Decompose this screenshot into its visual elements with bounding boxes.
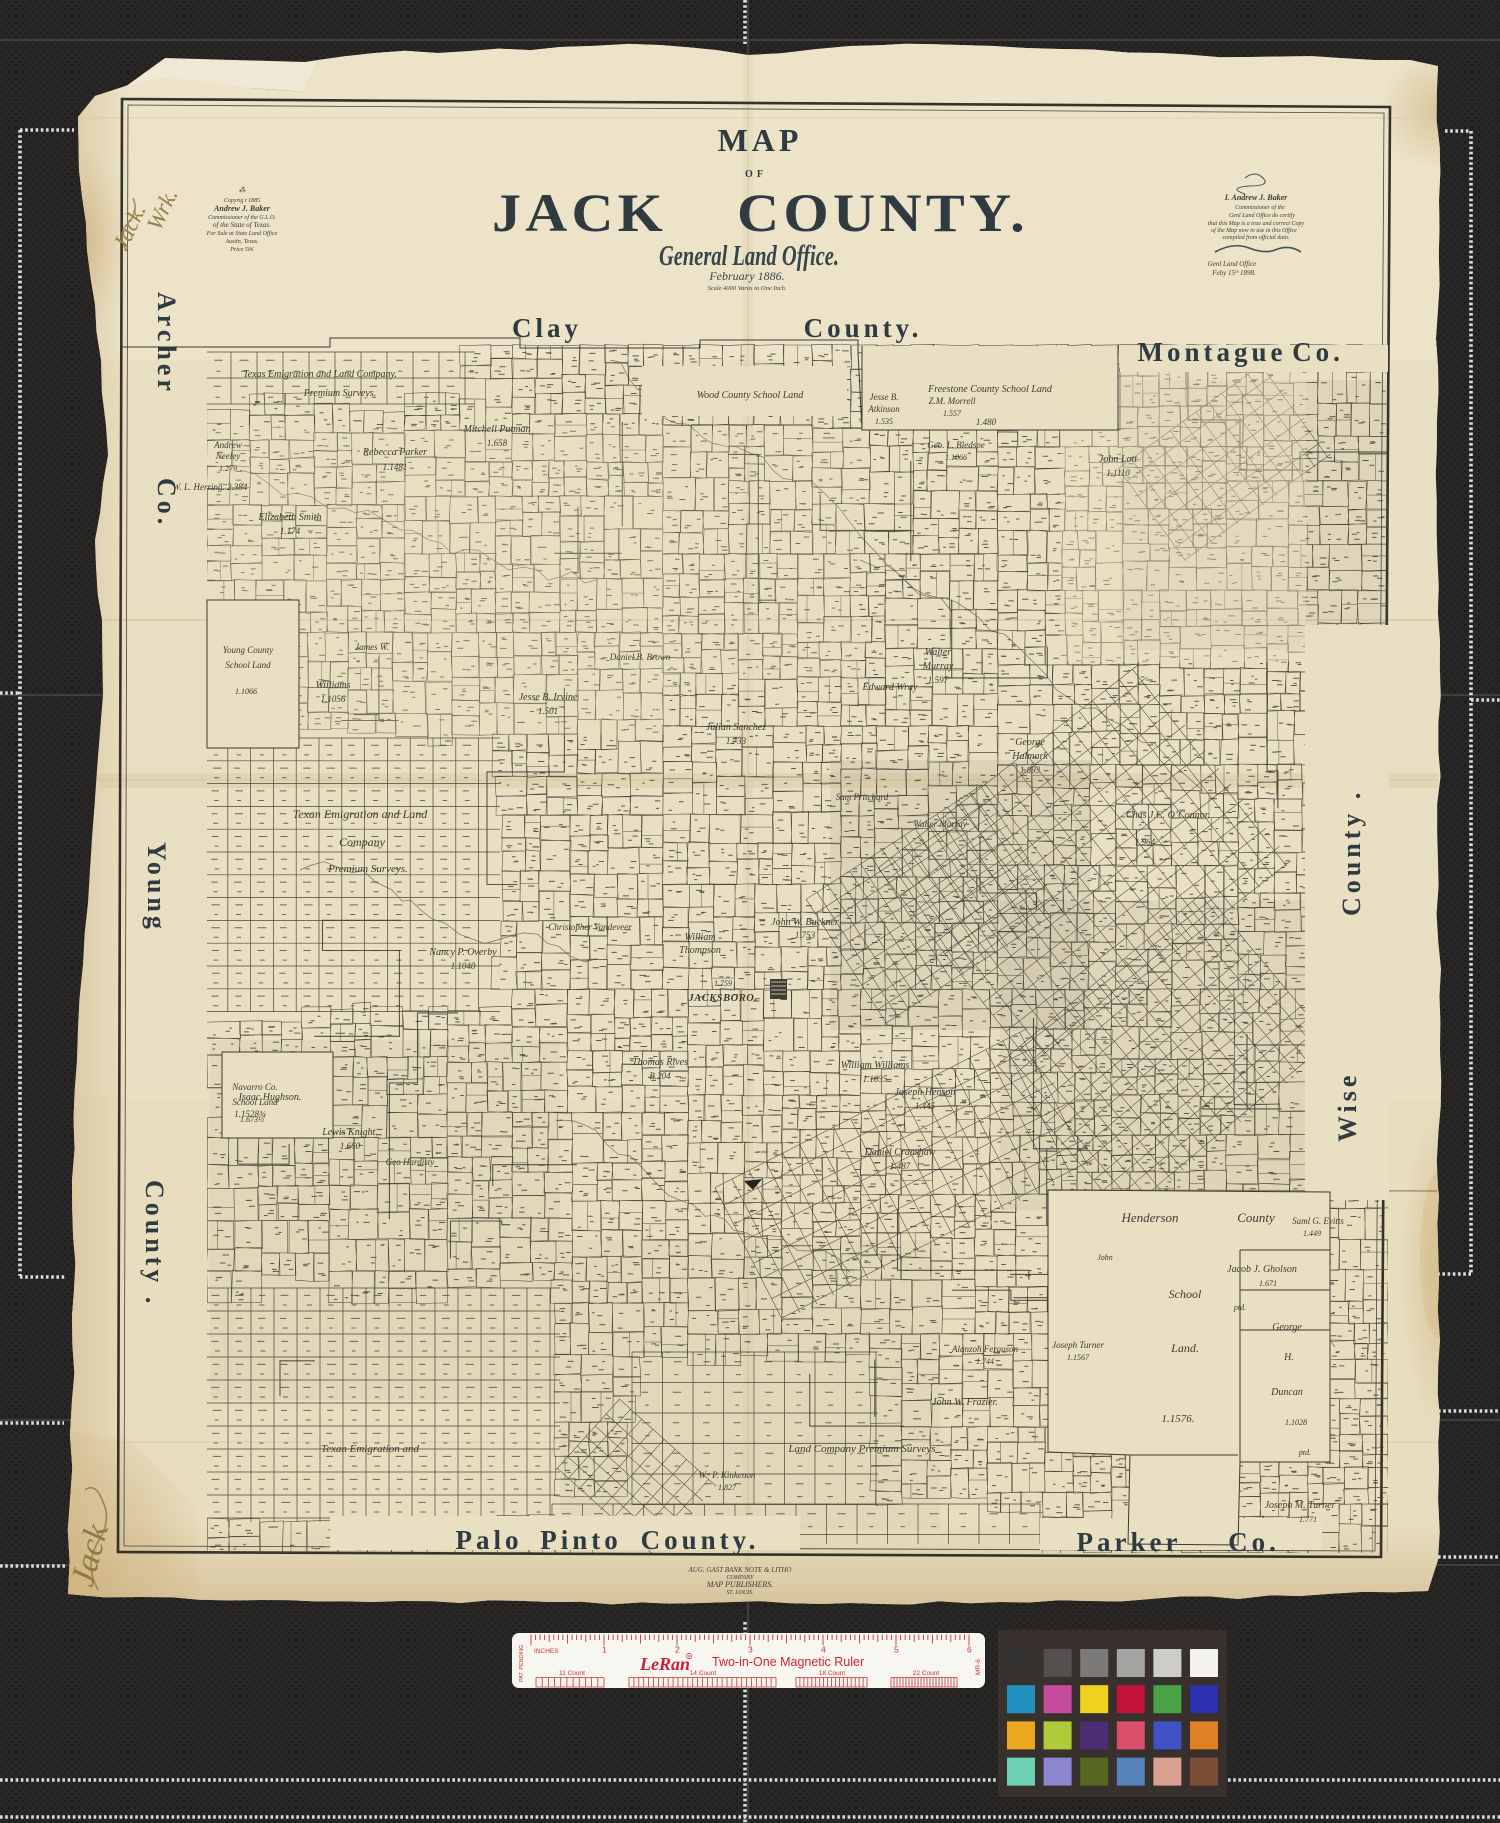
svg-text:1.480: 1.480 bbox=[976, 417, 997, 427]
svg-text:1.1110: 1.1110 bbox=[1106, 468, 1130, 478]
svg-text:AUG. GAST BANK NOTE & LITHO: AUG. GAST BANK NOTE & LITHO bbox=[688, 1566, 792, 1574]
svg-text:Rebecca Parker: Rebecca Parker bbox=[362, 447, 427, 458]
svg-text:Daniel B. Brown: Daniel B. Brown bbox=[609, 652, 671, 662]
svg-text:Williams: Williams bbox=[315, 680, 350, 691]
svg-text:Walter Murray: Walter Murray bbox=[913, 819, 966, 829]
svg-text:Young: Young bbox=[142, 842, 171, 933]
svg-text:Edward Wray: Edward Wray bbox=[862, 682, 918, 693]
svg-text:1.487: 1.487 bbox=[890, 1161, 911, 1171]
svg-text:1.1066: 1.1066 bbox=[945, 453, 967, 462]
svg-text:General Land Office.: General Land Office. bbox=[659, 241, 839, 272]
svg-text:John W. Buckner: John W. Buckner bbox=[771, 917, 839, 928]
svg-text:1.1066: 1.1066 bbox=[235, 687, 257, 696]
svg-text:JACK: JACK bbox=[492, 183, 667, 243]
svg-text:LeRan: LeRan bbox=[639, 1654, 690, 1674]
svg-text:William: William bbox=[684, 932, 715, 943]
svg-text:Co.: Co. bbox=[1228, 1527, 1280, 1557]
svg-text:MAP PUBLISHERS.: MAP PUBLISHERS. bbox=[706, 1580, 774, 1589]
svg-text:1.174: 1.174 bbox=[280, 526, 301, 536]
svg-text:Halmark: Halmark bbox=[1011, 751, 1048, 762]
svg-text:1: 1 bbox=[602, 1645, 607, 1655]
svg-text:2: 2 bbox=[675, 1645, 680, 1655]
svg-text:Murray: Murray bbox=[922, 661, 954, 672]
svg-text:1.753: 1.753 bbox=[795, 930, 816, 940]
svg-text:⁂: ⁂ bbox=[239, 186, 247, 194]
svg-text:Scale 4000 Varas to One In: Scale 4000 Varas to One Inch. bbox=[707, 285, 786, 292]
svg-text:Clay: Clay bbox=[512, 313, 582, 343]
svg-text:Alanzon Ferguson: Alanzon Ferguson bbox=[951, 1344, 1018, 1354]
svg-text:Company: Company bbox=[339, 835, 386, 849]
svg-text:INCHES: INCHES bbox=[534, 1648, 559, 1655]
svg-text:William Williams: William Williams bbox=[841, 1060, 910, 1071]
svg-text:Andrew: Andrew bbox=[213, 440, 242, 450]
svg-text:County .: County . bbox=[1337, 789, 1366, 916]
svg-text:Joseph Turner: Joseph Turner bbox=[1052, 1340, 1104, 1350]
svg-text:Two-in-One Magnetic Ruler: Two-in-One Magnetic Ruler bbox=[712, 1655, 864, 1669]
svg-text:Wᵐ P. Kinkenon: Wᵐ P. Kinkenon bbox=[699, 1470, 756, 1480]
svg-text:School: School bbox=[1169, 1287, 1202, 1301]
svg-text:County: County bbox=[1237, 1210, 1275, 1225]
svg-text:Feby 15ᵗʰ 1898.: Feby 15ᵗʰ 1898. bbox=[1211, 269, 1256, 277]
svg-text:Freestone County School Lan: Freestone County School Land bbox=[927, 384, 1053, 395]
svg-text:Thompson: Thompson bbox=[679, 945, 721, 956]
svg-text:COUNTY.: COUNTY. bbox=[737, 183, 1029, 243]
svg-text:Co.: Co. bbox=[152, 478, 181, 528]
svg-text:Nancy P. Overby: Nancy P. Overby bbox=[428, 947, 497, 958]
svg-text:B.204: B.204 bbox=[649, 1071, 671, 1081]
svg-text:1.733: 1.733 bbox=[726, 736, 747, 746]
svg-text:George: George bbox=[1015, 737, 1045, 748]
svg-text:5: 5 bbox=[894, 1645, 899, 1655]
svg-text:Archer: Archer bbox=[152, 292, 181, 395]
svg-text:Jesse B. Irvine: Jesse B. Irvine bbox=[519, 692, 578, 703]
svg-text:14 Count: 14 Count bbox=[690, 1670, 717, 1677]
svg-text:Julian Sanchez: Julian Sanchez bbox=[706, 722, 766, 733]
svg-text:County.: County. bbox=[804, 313, 923, 343]
svg-text:1.279: 1.279 bbox=[219, 464, 237, 473]
svg-text:John Lott: John Lott bbox=[1099, 454, 1137, 465]
svg-text:Walter: Walter bbox=[925, 647, 951, 658]
svg-text:R: R bbox=[688, 1654, 691, 1659]
svg-text:1.445: 1.445 bbox=[915, 1101, 936, 1111]
svg-text:1.535: 1.535 bbox=[875, 417, 893, 426]
svg-text:1.597: 1.597 bbox=[928, 675, 949, 685]
svg-text:John W. Frazier.: John W. Frazier. bbox=[932, 1397, 998, 1408]
svg-text:Joseph Henson: Joseph Henson bbox=[895, 1087, 956, 1098]
svg-text:Navarro Co.: Navarro Co. bbox=[231, 1082, 277, 1092]
svg-text:Christopher Vandeveer: Christopher Vandeveer bbox=[548, 922, 632, 932]
svg-text:of the Map now in use in this: of the Map now in use in this Office bbox=[1211, 227, 1297, 234]
svg-text:George: George bbox=[1272, 1322, 1302, 1333]
svg-text:OF: OF bbox=[745, 169, 767, 180]
svg-text:Andrew J. Baker: Andrew J. Baker bbox=[213, 204, 271, 213]
svg-text:ST. LOUIS.: ST. LOUIS. bbox=[726, 1590, 753, 1596]
svg-text:Texan Emigration and Lan: Texan Emigration and Land bbox=[293, 807, 429, 821]
svg-text:Land Company Premium Sur: Land Company Premium Surveys bbox=[787, 1443, 935, 1455]
svg-text:PAT. PENDING: PAT. PENDING bbox=[519, 1645, 525, 1682]
svg-text:Young County: Young County bbox=[223, 645, 273, 655]
svg-text:School Land: School Land bbox=[232, 1097, 278, 1107]
svg-text:School Land: School Land bbox=[225, 660, 271, 670]
svg-text:Texas Emigration and Lan: Texas Emigration and Land Company. bbox=[243, 369, 397, 380]
svg-text:11 Count: 11 Count bbox=[559, 1670, 585, 1677]
svg-text:ptd.: ptd. bbox=[1233, 1303, 1246, 1312]
svg-text:6: 6 bbox=[967, 1645, 972, 1655]
svg-text:Atkinson: Atkinson bbox=[867, 404, 900, 414]
svg-text:Joseph M. Turner: Joseph M. Turner bbox=[1265, 1500, 1336, 1511]
svg-text:1.501: 1.501 bbox=[538, 706, 558, 716]
svg-text:W. L. Herring. 2.384: W. L. Herring. 2.384 bbox=[173, 482, 248, 492]
svg-text:Premium Surveys.: Premium Surveys. bbox=[327, 863, 408, 875]
svg-text:1.1567: 1.1567 bbox=[1067, 1353, 1090, 1362]
svg-text:1.1056: 1.1056 bbox=[321, 694, 346, 704]
svg-text:Geo. L. Bledsoe: Geo. L. Bledsoe bbox=[927, 440, 985, 450]
svg-text:Pinto: Pinto bbox=[540, 1525, 622, 1555]
svg-text:For Sale at State Land Office: For Sale at State Land Office bbox=[206, 230, 278, 237]
svg-text:4: 4 bbox=[821, 1645, 826, 1655]
svg-text:John: John bbox=[1097, 1253, 1113, 1262]
svg-text:3: 3 bbox=[748, 1645, 753, 1655]
svg-text:Jacob J. Gholson: Jacob J. Gholson bbox=[1227, 1264, 1297, 1275]
svg-text:Commissioner of the: Commissioner of the bbox=[1235, 204, 1285, 211]
svg-text:MR-6: MR-6 bbox=[975, 1659, 982, 1675]
svg-text:Henderson: Henderson bbox=[1120, 1210, 1178, 1225]
svg-text:1.759: 1.759 bbox=[714, 979, 732, 988]
svg-text:MAP: MAP bbox=[718, 122, 803, 158]
svg-text:1.660: 1.660 bbox=[340, 1141, 361, 1151]
svg-text:Duncan: Duncan bbox=[1270, 1387, 1303, 1398]
svg-text:Geo Hardisty: Geo Hardisty bbox=[386, 1157, 434, 1167]
svg-text:Genl Land Office: Genl Land Office bbox=[1208, 260, 1257, 268]
svg-text:Sam Pritchard: Sam Pritchard bbox=[836, 792, 889, 802]
svg-text:Price 50¢: Price 50¢ bbox=[229, 247, 254, 253]
svg-text:County .: County . bbox=[140, 1180, 169, 1307]
svg-text:1.1035: 1.1035 bbox=[863, 1074, 888, 1084]
svg-text:Chas J.C. O’Connor.: Chas J.C. O’Connor. bbox=[1126, 810, 1210, 821]
svg-text:I. Andrew J. Baker: I. Andrew J. Baker bbox=[1224, 193, 1288, 202]
svg-text:Texan Emigration and: Texan Emigration and bbox=[321, 1443, 419, 1455]
svg-text:Palo: Palo bbox=[456, 1525, 523, 1555]
svg-text:Mitchell Putman: Mitchell Putman bbox=[463, 424, 531, 435]
svg-text:Commissioner of the G.L.O.: Commissioner of the G.L.O. bbox=[208, 214, 276, 221]
svg-text:1.893: 1.893 bbox=[1020, 765, 1041, 775]
svg-text:1.1028: 1.1028 bbox=[1285, 1418, 1307, 1427]
svg-text:ptd.: ptd. bbox=[1298, 1448, 1311, 1457]
svg-text:Land.: Land. bbox=[1170, 1341, 1199, 1355]
svg-text:Z.M. Morrell: Z.M. Morrell bbox=[929, 396, 976, 406]
svg-text:compiled from official data.: compiled from official data. bbox=[1223, 234, 1290, 241]
svg-text:1.658: 1.658 bbox=[487, 438, 508, 448]
svg-text:James W.: James W. bbox=[355, 642, 389, 652]
svg-text:Neeley: Neeley bbox=[215, 451, 240, 461]
svg-text:1.771: 1.771 bbox=[1299, 1515, 1317, 1524]
svg-text:JACKSBORO.: JACKSBORO. bbox=[688, 993, 758, 1004]
svg-text:of the State of Texas.: of the State of Texas. bbox=[213, 221, 271, 229]
svg-text:1.673½: 1.673½ bbox=[240, 1115, 264, 1124]
svg-text:Austin, Texas.: Austin, Texas. bbox=[224, 239, 258, 245]
svg-text:Parker: Parker bbox=[1077, 1527, 1182, 1557]
svg-text:1.557: 1.557 bbox=[943, 409, 962, 418]
svg-text:18 Count: 18 Count bbox=[819, 1670, 846, 1677]
svg-text:1.1040: 1.1040 bbox=[451, 961, 476, 971]
svg-text:1.827: 1.827 bbox=[718, 1483, 737, 1492]
svg-text:1.744: 1.744 bbox=[976, 1357, 994, 1366]
svg-text:Premium Surveys.: Premium Surveys. bbox=[303, 388, 376, 399]
svg-text:22 Count: 22 Count bbox=[913, 1670, 940, 1677]
svg-text:H.: H. bbox=[1283, 1352, 1294, 1363]
svg-text:Genl Land Office do certify: Genl Land Office do certify bbox=[1229, 212, 1295, 219]
svg-text:Montague: Montague bbox=[1138, 337, 1287, 367]
svg-text:Thomas Rives: Thomas Rives bbox=[632, 1057, 688, 1068]
svg-text:1.964: 1.964 bbox=[1135, 837, 1156, 847]
svg-text:Elizabeth Smith: Elizabeth Smith bbox=[257, 512, 321, 523]
svg-text:that this Map is a true and co: that this Map is a true and correct Copy bbox=[1208, 221, 1305, 227]
svg-text:Co.: Co. bbox=[1292, 337, 1344, 367]
svg-text:Saml G. Evitts: Saml G. Evitts bbox=[1292, 1216, 1344, 1226]
svg-text:February 1886.: February 1886. bbox=[708, 269, 784, 283]
svg-text:Daniel Cranshaw: Daniel Cranshaw bbox=[864, 1147, 936, 1158]
svg-text:1.1481: 1.1481 bbox=[383, 462, 408, 472]
svg-text:1.1576.: 1.1576. bbox=[1162, 1413, 1195, 1425]
svg-text:Jesse B.: Jesse B. bbox=[870, 392, 899, 402]
svg-text:1.671: 1.671 bbox=[1259, 1279, 1277, 1288]
svg-text:County.: County. bbox=[641, 1525, 760, 1555]
svg-text:Wise: Wise bbox=[1333, 1072, 1362, 1142]
svg-text:Lewis Knight.: Lewis Knight. bbox=[321, 1127, 378, 1138]
svg-text:Wood County School Land: Wood County School Land bbox=[697, 390, 805, 401]
svg-text:1.449: 1.449 bbox=[1303, 1229, 1321, 1238]
